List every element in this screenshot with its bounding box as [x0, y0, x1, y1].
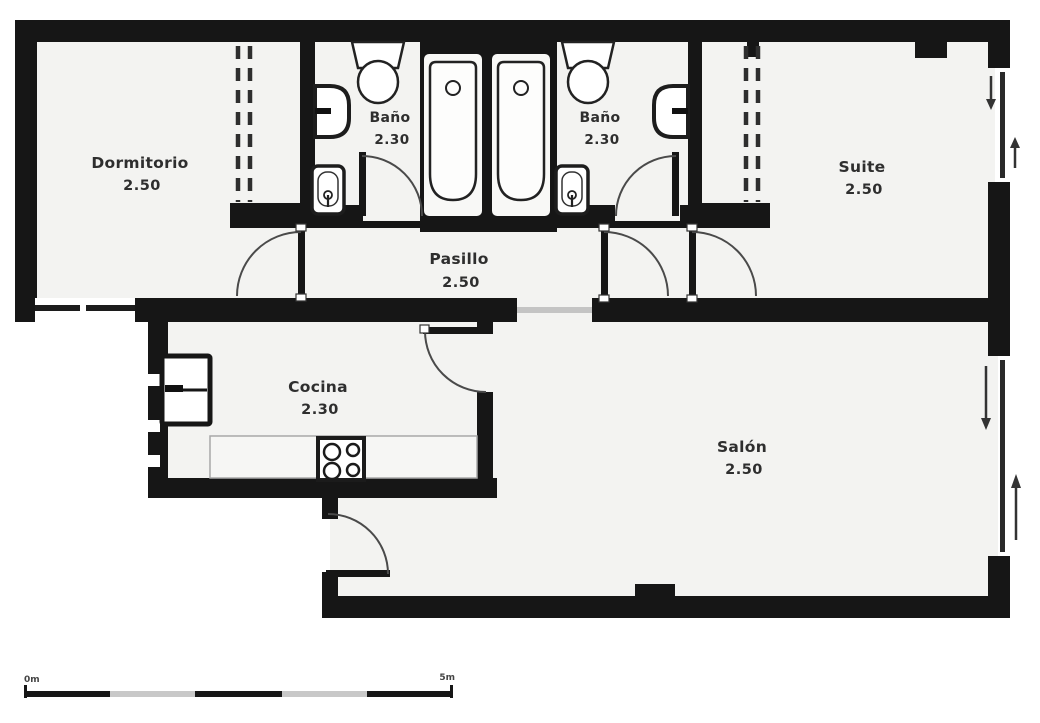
window-kitchen-tick-2	[148, 420, 160, 432]
toilet-icon	[568, 61, 608, 103]
bathtub-drain	[446, 81, 460, 95]
scale-bar-segment	[282, 691, 367, 697]
door-hinge	[687, 295, 697, 302]
wall-right-salon-upper	[988, 322, 1010, 356]
wall-kitchen-divider	[477, 392, 493, 492]
wall-right-suite-lower	[988, 182, 1010, 322]
door-leaf-cocina	[423, 327, 487, 334]
door-leaf-bano1	[359, 152, 366, 216]
door-hinge	[296, 294, 306, 301]
threshold-bath2-door	[615, 221, 680, 228]
room-dim-bano2: 2.30	[584, 132, 619, 148]
stove-burner	[324, 444, 340, 460]
scale-bar-end-label: 5m	[439, 673, 455, 683]
threshold-pasillo-salon	[517, 307, 592, 313]
window-kitchen-tick-3	[148, 455, 160, 467]
door-hinge	[296, 224, 306, 231]
room-label-cocina: Cocina	[288, 378, 348, 396]
wall-salon-bottom-pillar	[635, 584, 675, 598]
window-salon-pane	[1000, 360, 1005, 552]
scale-bar-segment	[25, 691, 110, 697]
window-salon-arrow-up-head	[1011, 474, 1021, 488]
room-label-suite: Suite	[839, 158, 886, 176]
window-suite-arrow-up-head	[1010, 137, 1020, 148]
scale-bar-segment	[367, 691, 452, 697]
threshold-bath1-door	[363, 221, 423, 228]
room-label-pasillo: Pasillo	[429, 250, 488, 268]
stove-burner	[347, 444, 359, 456]
floor-plan: Dormitorio 2.50 Baño 2.30 Baño 2.30 Suit…	[0, 0, 1040, 723]
room-label-bano2: Baño	[580, 110, 621, 126]
stove-burner	[347, 464, 359, 476]
door-hinge	[599, 295, 609, 302]
room-dim-suite: 2.50	[845, 182, 883, 198]
door-leaf-pasillo	[601, 230, 608, 296]
fridge-handle	[165, 385, 183, 392]
scale-bar-start-label: 0m	[24, 675, 40, 685]
floor-plan-canvas: Dormitorio 2.50 Baño 2.30 Baño 2.30 Suit…	[0, 0, 1040, 723]
window-dormitorio-mullion	[80, 304, 86, 312]
door-hinge	[687, 224, 697, 231]
wall-bath2-right	[688, 40, 702, 225]
wall-top	[15, 20, 1010, 42]
door-leaf-salon	[326, 570, 390, 577]
door-hinge	[599, 224, 609, 231]
wall-salon-left-lower	[322, 572, 338, 618]
wall-right-suite-upper	[988, 20, 1010, 68]
room-label-bano1: Baño	[370, 110, 411, 126]
sink-tap	[315, 108, 331, 114]
door-leaf-suite	[689, 230, 696, 296]
window-suite-pane	[1000, 72, 1005, 178]
wall-salon-bottom	[322, 596, 1010, 618]
door-hinge	[420, 325, 429, 333]
toilet-icon	[358, 61, 398, 103]
room-label-dormitorio: Dormitorio	[91, 154, 188, 172]
wall-suite-bottom	[592, 298, 1010, 322]
wall-salon-left-upper	[322, 498, 338, 519]
wall-left	[15, 20, 37, 322]
door-leaf-dormitorio	[298, 230, 305, 296]
scale-bar: 0m 5m	[24, 673, 455, 698]
room-label-salon: Salón	[717, 438, 767, 456]
scale-bar-segment	[110, 691, 195, 697]
window-kitchen-tick-1	[148, 374, 160, 386]
room-dim-dormitorio: 2.50	[123, 178, 161, 194]
wall-suite-top-pillar	[915, 42, 947, 58]
room-dim-cocina: 2.30	[301, 402, 339, 418]
sink-tap	[672, 108, 688, 114]
room-dim-salon: 2.50	[725, 462, 763, 478]
door-leaf-bano2	[672, 152, 679, 216]
stove-burner	[324, 463, 340, 479]
room-dim-pasillo: 2.50	[442, 275, 480, 291]
scale-bar-segment	[195, 691, 282, 697]
bathtub-drain	[514, 81, 528, 95]
room-dim-bano1: 2.30	[374, 132, 409, 148]
